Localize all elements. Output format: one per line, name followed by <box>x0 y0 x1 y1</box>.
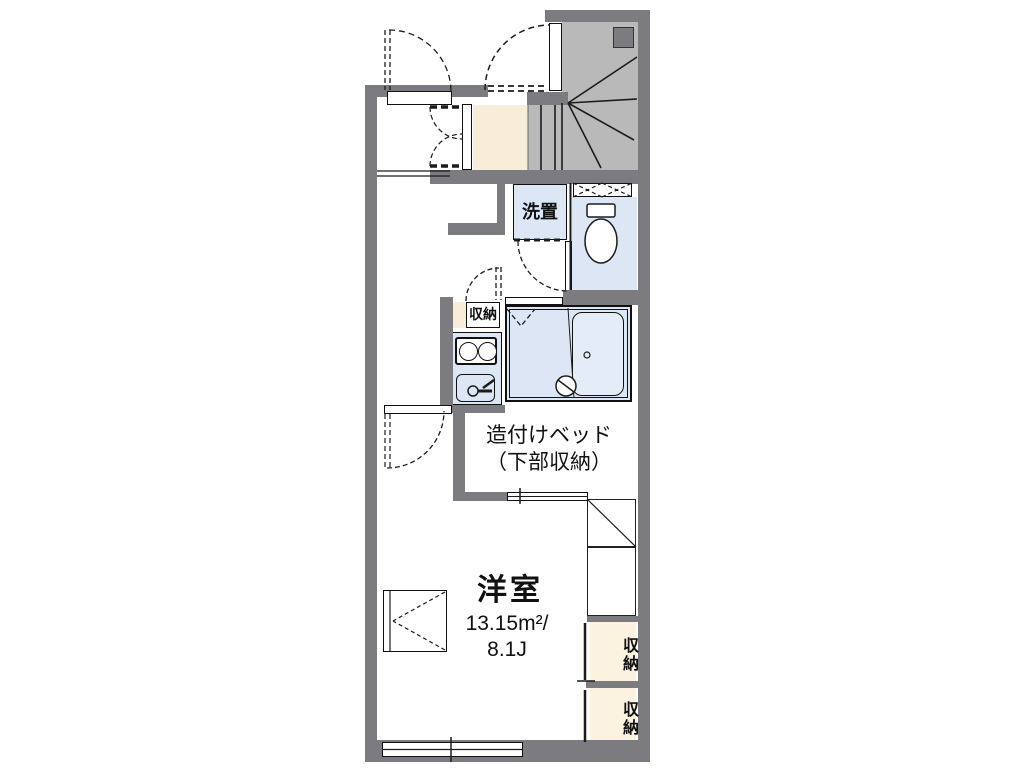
kitchen-storage-label: 収納 <box>466 307 500 322</box>
corridor-door-open-position <box>496 267 501 300</box>
bed-label-line2: （下部収納） <box>469 452 629 474</box>
entrance-door-leaf <box>549 23 562 91</box>
closet-right-top-label: 収納 <box>590 630 636 680</box>
closet-door-open-segments <box>430 107 461 166</box>
bath-threshold <box>505 297 563 305</box>
wall-below-toilet <box>563 290 638 305</box>
toilet-door-swing-arc <box>518 241 568 291</box>
closet-double-door-leaf <box>462 104 472 170</box>
room-door-swing-arc <box>387 411 444 468</box>
room-door-open-position <box>385 414 390 467</box>
outside-door-leaf <box>387 91 452 105</box>
wall-left <box>365 85 377 762</box>
room-name-label: 洋室 <box>445 575 575 607</box>
stair-pipe-space <box>613 27 634 48</box>
outside-door-open-position <box>385 30 390 90</box>
wall-bed-bottom <box>453 492 509 501</box>
closet-right-bottom-label: 収納 <box>590 694 636 744</box>
closet-door-swing-arcs <box>430 107 462 166</box>
room-closet <box>383 590 447 652</box>
bed-access-rail <box>507 492 588 501</box>
wall-bed-left <box>453 405 465 500</box>
room-door-lintel <box>384 405 452 414</box>
floor-plan: 洋室 13.15m²/ 8.1J 造付けベッド （下部収納） 洗置 収納 収納 … <box>0 0 1017 772</box>
stove <box>455 337 497 365</box>
outside-door-swing-arc <box>389 30 451 91</box>
corridor-door-swing-arc <box>466 268 499 301</box>
entrance-door-swing-arc <box>485 25 550 90</box>
stair-landing <box>528 105 568 170</box>
room-area-label: 13.15m²/ <box>442 613 572 635</box>
bottom-window <box>382 742 523 757</box>
sink <box>456 374 495 402</box>
laundry-label: 洗置 <box>513 203 567 222</box>
stove-burner-left <box>459 342 478 361</box>
wall-kitchen-left <box>440 297 453 413</box>
wall-right <box>638 10 650 762</box>
wall-fridge-divider <box>587 616 638 622</box>
toilet-window <box>573 183 632 197</box>
open-space-box <box>587 547 636 616</box>
bed-label-line1: 造付けベッド <box>469 425 629 447</box>
kitchen-storage-strip <box>453 302 466 328</box>
refrigerator-space <box>587 499 636 547</box>
entrance-opening-dashes <box>488 86 548 91</box>
toilet-room-floor <box>572 197 637 290</box>
wall-closet-divider <box>586 681 638 688</box>
wall-entrance-stub <box>527 92 568 105</box>
room-tatami-label: 8.1J <box>442 639 572 661</box>
bathtub <box>572 312 624 396</box>
wall-sanitary-top <box>430 170 638 184</box>
wall-stair-top <box>545 10 638 22</box>
toilet-door-leaf <box>565 241 572 291</box>
stove-burner-right <box>478 342 497 361</box>
wall-niche-bottom <box>448 223 505 235</box>
entrance-genkan <box>473 105 528 170</box>
